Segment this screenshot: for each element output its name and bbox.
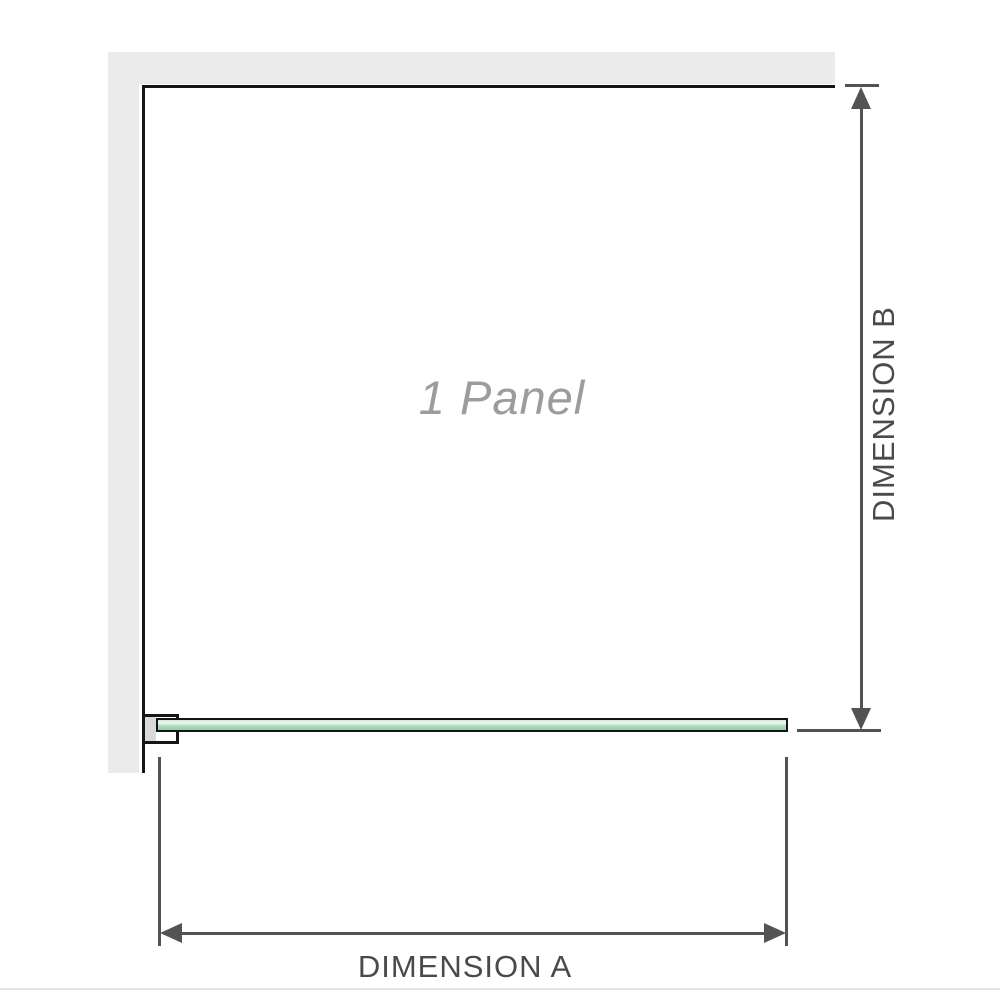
panel-area-left-border (142, 85, 145, 773)
panel-area-top-border (142, 85, 835, 88)
wall-top (108, 52, 835, 84)
panel-count-label: 1 Panel (327, 368, 677, 428)
shower-panel-diagram: 1 Panel DIMENSION A DIMENSION B (0, 0, 1000, 1000)
arrow-down-icon (851, 708, 871, 730)
arrow-left-icon (160, 923, 182, 943)
wall-left (108, 52, 139, 773)
arrow-up-icon (851, 87, 871, 109)
dimension-b-label: DIMENSION B (865, 263, 903, 565)
bracket-pad (145, 717, 156, 741)
image-bottom-edge (0, 988, 1000, 990)
dimension-a-label: DIMENSION A (314, 948, 616, 986)
glass-panel (156, 718, 788, 732)
dimension-b-line (860, 102, 863, 712)
dimension-a-extension-line-left (158, 757, 161, 946)
dimension-a-extension-line-right (785, 757, 788, 946)
arrow-right-icon (764, 923, 786, 943)
dimension-a-line (170, 932, 776, 935)
